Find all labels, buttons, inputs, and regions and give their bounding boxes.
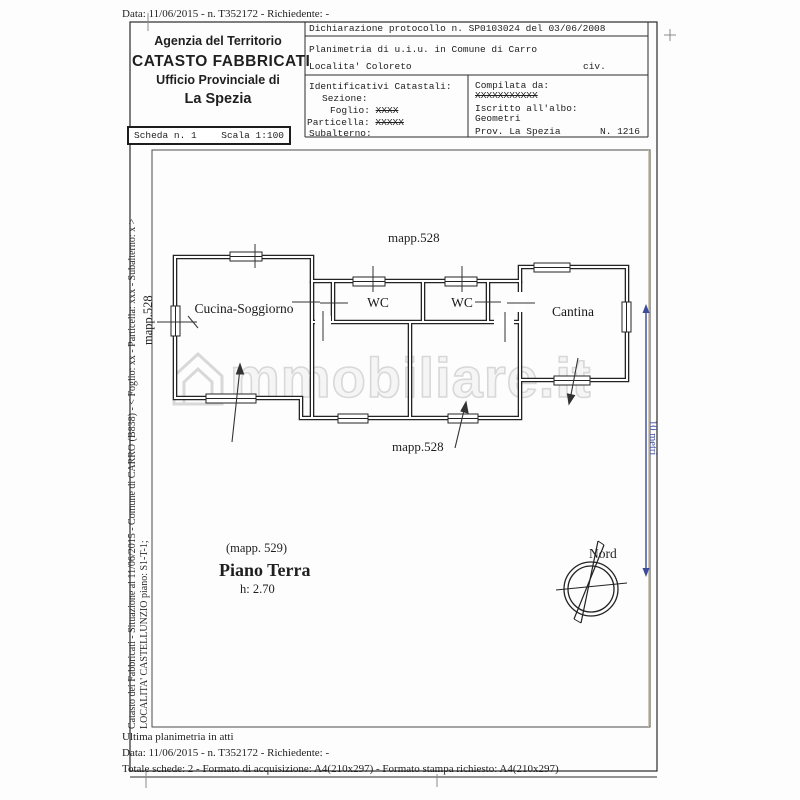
compilata-name: XXXXXXXXXXX <box>475 90 538 101</box>
declaration-line: Dichiarazione protocollo n. SP0103024 de… <box>309 23 605 34</box>
room-label-wc-1: WC <box>348 295 408 311</box>
cadastral-sheet: mmobiliare.it <box>0 0 800 800</box>
albo-number: N. 1216 <box>600 126 640 137</box>
localita-line: Localita' Coloreto <box>309 61 412 72</box>
floor-height: h: 2.70 <box>240 582 275 597</box>
prov-label: Prov. La Spezia <box>475 126 561 137</box>
albo-value: Geometri <box>475 113 521 124</box>
room-label-cucina-soggiorno: Cucina-Soggiorno <box>179 301 309 317</box>
mapp-529-label: (mapp. 529) <box>226 541 287 556</box>
civ-label: civ. <box>583 61 606 72</box>
agency-block: Agenzia del Territorio CATASTO FABBRICAT… <box>132 34 304 108</box>
room-label-cantina: Cantina <box>533 304 613 320</box>
agency-line1: Agenzia del Territorio <box>132 34 304 50</box>
particella-label: Particella: <box>307 117 370 128</box>
room-label-wc-2: WC <box>432 295 492 311</box>
agency-line2: CATASTO FABBRICATI <box>132 52 304 71</box>
identificativi-title: Identificativi Catastali: <box>309 81 452 92</box>
particella-row: Particella: XXXXX <box>307 117 404 128</box>
plan-windows <box>171 252 631 423</box>
sezione-label: Sezione: <box>322 93 368 104</box>
subalterno-label: Subalterno: <box>309 128 372 139</box>
agency-line3: Ufficio Provinciale di <box>132 73 304 89</box>
scheda-number: Scheda n. 1 <box>134 130 197 141</box>
floor-title: Piano Terra <box>219 560 311 581</box>
foglio-row: Foglio: XXXX <box>330 105 398 116</box>
scheda-box: Scheda n. 1 Scala 1:100 <box>127 126 291 145</box>
scala-value: Scala 1:100 <box>221 130 284 141</box>
footer-ultima-planimetria: Ultima planimetria in atti <box>122 731 234 743</box>
particella-value: XXXXX <box>375 117 404 128</box>
foglio-value: XXXX <box>376 105 399 116</box>
door-arrows <box>232 358 578 448</box>
sidebar-situazione-line: Catasto dei Fabbricati - Situazione al 1… <box>127 219 138 729</box>
dimension-label: 10 metri <box>647 420 658 455</box>
footer-totale-schede: Totale schede: 2 - Formato di acquisizio… <box>122 763 559 775</box>
sidebar-localita-line: LOCALITA' CASTELLUNZIO piano: S1-T-1; <box>139 540 150 729</box>
foglio-label: Foglio: <box>330 105 370 116</box>
agency-line4: La Spezia <box>132 90 304 108</box>
mapp-528-bottom: mapp.528 <box>392 439 444 455</box>
planimetria-line: Planimetria di u.i.u. in Comune di Carro <box>309 44 537 55</box>
footer-data-line: Data: 11/06/2015 - n. T352172 - Richiede… <box>122 747 329 759</box>
mapp-528-top: mapp.528 <box>388 230 440 246</box>
top-data-line: Data: 11/06/2015 - n. T352172 - Richiede… <box>122 8 329 20</box>
north-label: Nord <box>589 546 617 562</box>
mapp-528-left: mapp.528 <box>141 295 156 345</box>
